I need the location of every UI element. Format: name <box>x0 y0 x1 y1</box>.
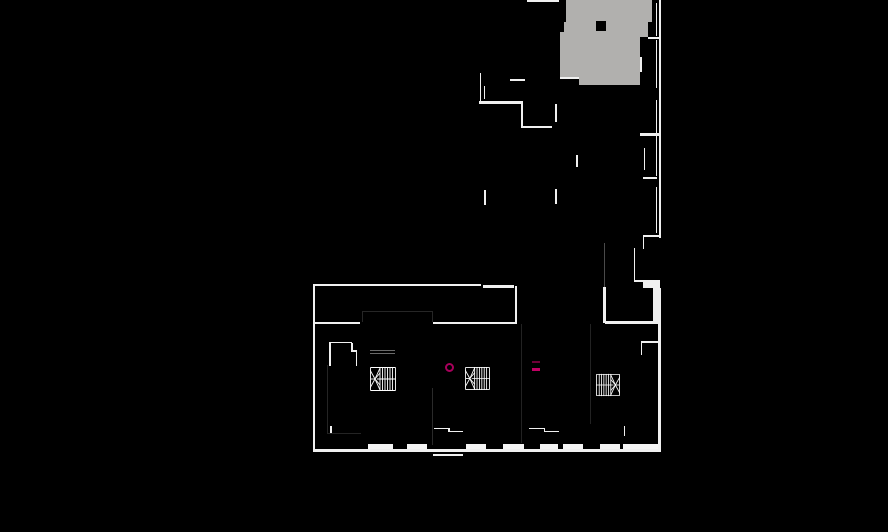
wall-segment <box>560 77 579 79</box>
wall-segment <box>313 284 481 287</box>
window-sill <box>600 444 620 449</box>
faint-wall-segment <box>370 353 395 354</box>
wall-segment <box>329 342 331 366</box>
faint-wall-segment <box>432 311 433 322</box>
wall-segment <box>644 148 646 170</box>
wall-segment <box>603 287 606 323</box>
wall-segment <box>544 431 559 433</box>
faint-wall-segment <box>432 388 433 445</box>
wall-segment <box>555 189 557 204</box>
wall-segment <box>356 350 358 366</box>
wall-segment <box>484 86 486 99</box>
wall-segment <box>576 155 578 167</box>
circular-survey-marker <box>445 363 454 372</box>
wall-segment <box>515 286 518 324</box>
roof-terrace-area <box>560 32 640 78</box>
faint-wall-segment <box>362 311 363 322</box>
wall-segment <box>529 428 544 430</box>
wall-segment <box>315 322 360 325</box>
faint-wall-segment <box>590 324 591 424</box>
stair-symbol <box>370 367 396 391</box>
wall-segment <box>479 101 523 104</box>
wall-segment <box>448 431 463 433</box>
window-sill <box>503 444 524 449</box>
wall-segment <box>313 284 316 452</box>
wall-segment <box>433 322 516 325</box>
window-sill <box>540 444 558 449</box>
window-sill <box>466 444 486 449</box>
wall-segment <box>640 57 642 72</box>
floor-plan-canvas <box>0 0 888 532</box>
wall-segment <box>555 104 557 122</box>
wall-segment <box>521 104 523 128</box>
wall-segment <box>329 342 352 344</box>
wall-segment <box>624 426 626 436</box>
wall-segment <box>605 321 659 324</box>
dash-marker <box>532 368 540 371</box>
wall-segment <box>434 428 449 430</box>
wall-segment <box>656 100 658 133</box>
wall-segment <box>648 37 660 39</box>
wall-segment <box>641 341 643 356</box>
wall-segment <box>643 237 645 249</box>
window-sill <box>563 444 583 449</box>
wall-segment <box>433 454 463 456</box>
roof-terrace-area <box>579 77 640 85</box>
faint-wall-segment <box>370 350 395 351</box>
wall-segment <box>527 0 559 2</box>
wall-segment <box>643 235 660 238</box>
wall-segment <box>523 126 552 128</box>
dash-marker <box>532 361 540 363</box>
wall-segment <box>510 79 525 81</box>
wall-segment <box>640 133 660 136</box>
roof-opening <box>596 21 606 31</box>
stair-symbol <box>596 373 620 397</box>
wall-segment <box>656 40 658 88</box>
roof-terrace-area <box>566 0 652 22</box>
wall-segment <box>656 3 658 36</box>
wall-segment <box>656 187 658 233</box>
wall-segment <box>643 177 657 179</box>
wall-segment <box>653 288 661 324</box>
wall-segment <box>642 341 659 343</box>
faint-wall-segment <box>604 243 605 287</box>
stair-symbol <box>465 367 490 390</box>
wall-segment <box>480 73 482 102</box>
window-sill <box>623 444 658 449</box>
wall-segment <box>484 190 486 205</box>
wall-segment <box>313 449 662 452</box>
wall-segment <box>483 285 514 288</box>
window-sill <box>407 444 427 449</box>
wall-segment <box>656 136 658 176</box>
faint-wall-segment <box>521 324 522 443</box>
window-sill <box>368 444 393 449</box>
faint-wall-segment <box>327 433 361 434</box>
faint-wall-segment <box>362 311 433 312</box>
faint-wall-segment <box>327 365 328 433</box>
wall-segment <box>634 248 636 280</box>
